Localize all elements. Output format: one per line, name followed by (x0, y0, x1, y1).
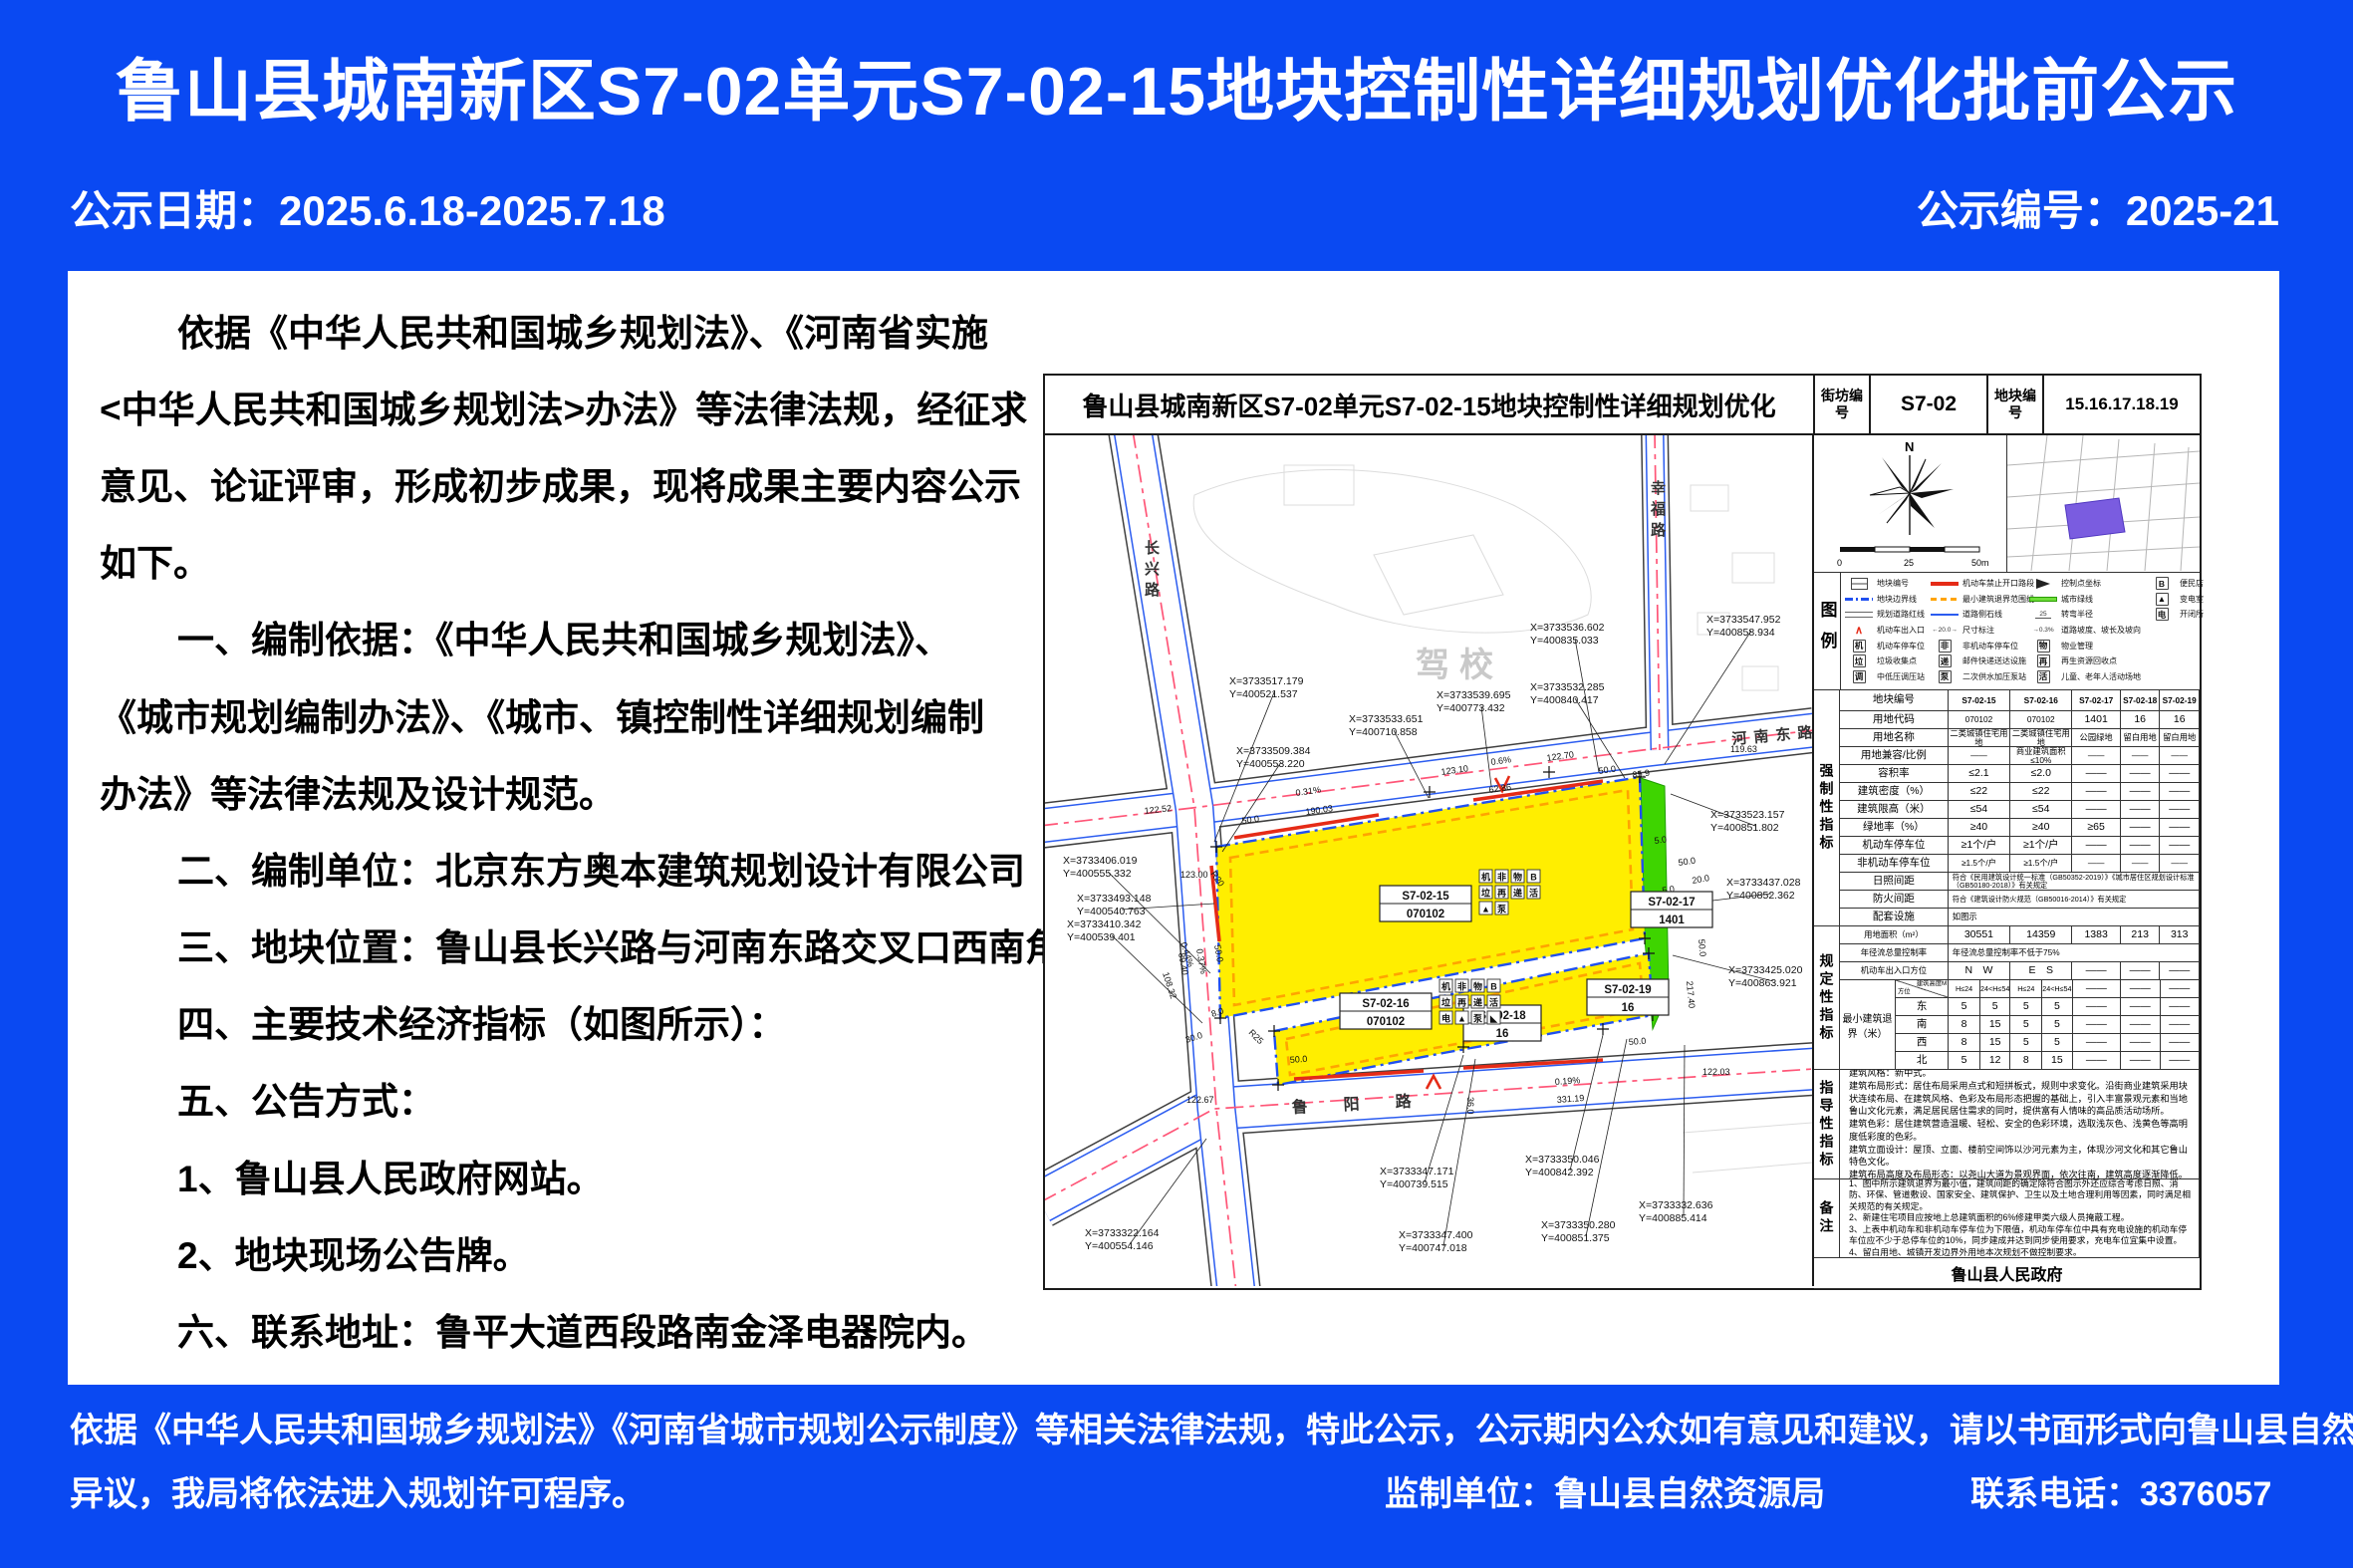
svg-text:长: 长 (1145, 539, 1161, 557)
svg-text:路: 路 (1651, 521, 1667, 539)
svg-text:S7-02-19: S7-02-19 (1604, 984, 1651, 996)
svg-text:Y=400840.417: Y=400840.417 (1530, 694, 1599, 706)
notice-line: 办法》等法律法规及设计规范。 (100, 752, 1061, 829)
svg-text:122.03: 122.03 (1702, 1067, 1730, 1077)
svg-text:122.67: 122.67 (1186, 1095, 1214, 1105)
svg-text:非: 非 (1497, 872, 1506, 883)
box-icon: 机 (1844, 640, 1874, 653)
legend-item: 活儿童、老年人活动场地 (2028, 669, 2147, 685)
svg-text:S7-02-16: S7-02-16 (1362, 998, 1409, 1010)
notice-line: 依据《中华人民共和国城乡规划法》、《河南省实施 (100, 291, 1061, 368)
svg-text:Y=400747.018: Y=400747.018 (1399, 1242, 1467, 1254)
svg-text:50m: 50m (1971, 558, 1989, 568)
plot-number-label: 地块编号 (1986, 376, 2042, 433)
svg-text:路: 路 (1145, 581, 1161, 599)
svg-text:物: 物 (1473, 981, 1482, 992)
legend-item: 非非机动车停车位 (1930, 638, 2028, 653)
svg-text:Y=400739.515: Y=400739.515 (1380, 1178, 1448, 1190)
svg-text:X=3733322.164: X=3733322.164 (1085, 1227, 1160, 1239)
svg-text:070102: 070102 (1407, 909, 1444, 920)
page-title: 鲁山县城南新区S7-02单元S7-02-15地块控制性详细规划优化批前公示 (0, 36, 2353, 134)
svg-text:Y=400885.414: Y=400885.414 (1639, 1212, 1707, 1224)
table-row: 建筑高度M方位H≤2424<H≤54H≤2424<H≤54—————— (1896, 980, 2200, 998)
legend-item: 25转弯半径 (2028, 607, 2147, 623)
bl-icon (1930, 614, 1960, 617)
table-row: 南81555—————— (1896, 1016, 2200, 1034)
svg-text:1401: 1401 (1659, 915, 1685, 926)
plotnum-icon (1844, 578, 1874, 590)
svg-text:再: 再 (1457, 998, 1466, 1008)
svg-text:X=3733493.148: X=3733493.148 (1077, 893, 1152, 905)
table-row: 容积率≤2.1≤2.0—————— (1840, 765, 2200, 783)
legend-item: 城市绿线 (2028, 592, 2147, 608)
compass-row: N (1814, 435, 2200, 573)
svg-text:X=3733437.028: X=3733437.028 (1726, 877, 1801, 889)
section-label: 最小建筑退界（米） (1840, 980, 1896, 1070)
table-row: 地块编号S7-02-15S7-02-16S7-02-17S7-02-18S7-0… (1840, 690, 2200, 711)
legend-section-label: 图例 (1814, 573, 1841, 689)
legend-item: 递邮件快递送达设施 (1930, 653, 2028, 669)
svg-text:Y=400710.858: Y=400710.858 (1349, 726, 1418, 738)
svg-text:Y=400773.432: Y=400773.432 (1437, 702, 1505, 714)
section-label: 强制性指标 (1814, 690, 1840, 926)
svg-text:20.0: 20.0 (1692, 873, 1710, 886)
svg-text:非: 非 (1457, 981, 1466, 992)
table-row: 用地兼容/比例——商业建筑面积≤10%—————— (1840, 747, 2200, 765)
svg-text:50.0: 50.0 (1241, 814, 1260, 826)
legend-item: 规划道路红线 (1844, 607, 1930, 623)
svg-text:福: 福 (1650, 500, 1666, 518)
svg-text:X=3733347.171: X=3733347.171 (1380, 1166, 1454, 1177)
publish-date: 公示日期：2025.6.18-2025.7.18 (70, 177, 665, 238)
svg-text:Y=400842.392: Y=400842.392 (1525, 1167, 1594, 1178)
section-label: 备注 (1814, 1179, 1840, 1258)
table-row: 东5555—————— (1896, 998, 2200, 1016)
notice-line: 意见、论证评审，形成初步成果，现将成果主要内容公示 (100, 444, 1061, 521)
legend-item: 物物业管理 (2028, 638, 2147, 653)
svg-text:Y=400863.921: Y=400863.921 (1728, 977, 1797, 989)
table-row: 用地名称二类城镇住宅用地二类城镇住宅用地公园绿地留白用地留白用地 (1840, 729, 2200, 747)
svg-text:X=3733350.280: X=3733350.280 (1541, 1219, 1616, 1231)
svg-text:递: 递 (1513, 888, 1522, 899)
legend-item: ▲变电室 (2147, 592, 2203, 608)
svg-text:◣: ◣ (1489, 1014, 1498, 1024)
north-label: N (1905, 439, 1914, 454)
notice-line: 如下。 (100, 522, 1061, 599)
notice-number: 公示编号：2025-21 (1917, 177, 2279, 238)
map-title: 鲁山县城南新区S7-02单元S7-02-15地块控制性详细规划优化 (1045, 376, 1813, 433)
svg-text:50.0: 50.0 (1289, 1054, 1307, 1065)
notice-line: 二、编制单位：北京东方奥本建筑规划设计有限公司 (100, 829, 1061, 906)
indicator-table: 地块编号S7-02-15S7-02-16S7-02-17S7-02-18S7-0… (1814, 689, 2200, 1286)
svg-text:S7-02-15: S7-02-15 (1402, 891, 1449, 903)
notice-poster: 鲁山县城南新区S7-02单元S7-02-15地块控制性详细规划优化批前公示 公示… (0, 0, 2353, 1568)
box-icon: 泵 (1930, 670, 1960, 683)
svg-text:331.19: 331.19 (1556, 1093, 1584, 1105)
svg-text:X=3733523.157: X=3733523.157 (1710, 809, 1785, 821)
notice-line: 2、地块现场公告牌。 (100, 1213, 1061, 1290)
svg-text:X=3733332.636: X=3733332.636 (1639, 1199, 1713, 1211)
box-icon: ▲ (2147, 593, 2177, 606)
legend-item: 再再生资源回收点 (2028, 653, 2147, 669)
svg-text:垃: 垃 (1481, 888, 1490, 899)
section-label: 规定性指标 (1814, 926, 1840, 1070)
table-row: 建筑限高（米）≤54≤54—————— (1840, 801, 2200, 819)
svg-text:X=3733406.019: X=3733406.019 (1063, 855, 1138, 867)
map-header: 鲁山县城南新区S7-02单元S7-02-15地块控制性详细规划优化 街坊编号 S… (1045, 376, 2200, 435)
notice-line: 四、主要技术经济指标（如图所示）： (100, 983, 1061, 1060)
bdd-icon (1844, 598, 1874, 601)
footer-line2-left: 异议，我局将依法进入规划许可程序。 (70, 1466, 646, 1515)
svg-text:123.00: 123.00 (1180, 870, 1208, 880)
table-row: 绿地率（%）≥40≥40≥65———— (1840, 819, 2200, 837)
notice-line: <中华人民共和国城乡规划法>办法》等法律法规，经征求 (100, 368, 1061, 444)
table-row: 非机动车停车位≥1.5个/户≥1.5个/户—————— (1840, 855, 2200, 873)
table-row: 机动车出入口方位N WE S—————— (1840, 962, 2200, 980)
svg-text:机: 机 (1441, 981, 1450, 992)
svg-text:X=3733536.602: X=3733536.602 (1530, 622, 1605, 634)
svg-text:Y=400858.934: Y=400858.934 (1706, 627, 1775, 639)
box-icon: 活 (2028, 670, 2058, 683)
box-icon: 垃 (1844, 654, 1874, 667)
table-row: 配套设施如图示 (1840, 909, 2200, 926)
table-row: 防火间距符合《建筑设计防火规范（GB50016-2014）》有关规定 (1840, 891, 2200, 909)
wind-rose-outline (1870, 459, 1926, 523)
svg-text:62.86: 62.86 (1488, 782, 1512, 795)
svg-text:85.9: 85.9 (1632, 768, 1651, 780)
svg-text:Y=400521.537: Y=400521.537 (1229, 688, 1298, 700)
svg-text:X=3733410.342: X=3733410.342 (1067, 918, 1142, 930)
table-row: 日照间距符合《民用建筑设计统一标准（GB50352-2019）》《城市居住区规划… (1840, 873, 2200, 891)
svg-text:S7-02-18: S7-02-18 (1478, 1010, 1526, 1022)
notice-line: 六、联系地址：鲁平大道西段路南金泽电器院内。 (100, 1290, 1061, 1367)
svg-text:50.0: 50.0 (1628, 1036, 1646, 1047)
box-icon: 递 (1930, 654, 1960, 667)
dim-icon: ←20.0→ (1930, 627, 1960, 634)
notice-line: 1、鲁山县人民政府网站。 (100, 1137, 1061, 1213)
svg-text:R25: R25 (1247, 1027, 1266, 1046)
legend-item: 垃垃圾收集点 (1844, 653, 1930, 669)
legend-item: ∧机动车出入口 (1844, 623, 1930, 639)
svg-text:16: 16 (1622, 1002, 1635, 1014)
table-row: 北512815—————— (1896, 1052, 2200, 1070)
svg-text:217.40: 217.40 (1685, 980, 1697, 1008)
legend-item: 调中低压调压站 (1844, 669, 1930, 685)
box-icon: B (2147, 577, 2177, 590)
svg-text:X=3733347.400: X=3733347.400 (1399, 1229, 1473, 1241)
section-label: 指导性指标 (1814, 1070, 1840, 1179)
box-icon: 电 (2147, 608, 2177, 621)
legend-item: 最小建筑退界范围线 (1930, 592, 2028, 608)
legend-item: ←20.0→尺寸标注 (1930, 623, 2028, 639)
box-icon: 物 (2028, 640, 2058, 653)
notice-line: 一、编制依据：《中华人民共和国城乡规划法》、 (100, 599, 1061, 675)
legend-item: B便民店 (2147, 576, 2203, 592)
legend-item: 控制点坐标 (2028, 576, 2147, 592)
table-row: 用地面积（m²）30551143591383213313 (1840, 926, 2200, 944)
legend-item: 道路侧石线 (1930, 607, 2028, 623)
svg-text:Y=400554.146: Y=400554.146 (1085, 1240, 1154, 1252)
table-row: 年径流总量控制率年径流总量控制率不低于75% (1840, 944, 2200, 962)
subheader: 公示日期：2025.6.18-2025.7.18 公示编号：2025-21 (70, 177, 2279, 238)
svg-text:幸: 幸 (1651, 480, 1666, 497)
svg-text:Y=400553.220: Y=400553.220 (1236, 758, 1305, 770)
legend-item: →0.3%道路坡度、坡长及坡向 (2028, 623, 2147, 639)
table-row: 建筑密度（%）≤22≤22—————— (1840, 783, 2200, 801)
svg-text:0.19%: 0.19% (1554, 1075, 1580, 1087)
plot-label: S7-02-15070102 (1380, 886, 1471, 921)
svg-text:泵: 泵 (1473, 1014, 1483, 1024)
svg-text:X=3733509.384: X=3733509.384 (1236, 745, 1311, 757)
svg-text:物: 物 (1513, 872, 1522, 883)
block-number-value: S7-02 (1869, 376, 1986, 433)
slope-icon: →0.3% (2028, 627, 2058, 634)
svg-text:泵: 泵 (1497, 905, 1507, 915)
svg-text:X=3733425.020: X=3733425.020 (1728, 964, 1803, 976)
plan-drawing: X=3733517.179Y=400521.537X=3733509.384Y=… (1045, 435, 1812, 1286)
rad-icon: 25 (2028, 611, 2058, 619)
svg-text:Y=400851.375: Y=400851.375 (1541, 1232, 1610, 1244)
notice-line: 《城市规划编制办法》、《城市、镇控制性详细规划编制 (100, 675, 1061, 752)
svg-text:Y=400540.763: Y=400540.763 (1077, 906, 1146, 917)
svg-text:X=3733547.952: X=3733547.952 (1706, 614, 1781, 626)
svg-text:机: 机 (1481, 872, 1490, 883)
svg-text:S7-02-17: S7-02-17 (1648, 897, 1695, 909)
box-icon: 调 (1844, 670, 1874, 683)
table-row: 1、图中所示建筑退界为最小值，建筑间距的确定除符合图示外还应综合考虑日照、消防、… (1840, 1179, 2200, 1258)
svg-text:Y=400852.362: Y=400852.362 (1726, 890, 1795, 902)
content-panel: 依据《中华人民共和国城乡规划法》、《河南省实施<中华人民共和国城乡规划法>办法》… (68, 271, 2279, 1385)
plot-label: S7-02-1916 (1587, 979, 1669, 1015)
od-icon (1930, 598, 1960, 601)
svg-text:Y=400555.332: Y=400555.332 (1063, 868, 1132, 880)
legend-item: 泵二次供水加压泵站 (1930, 669, 2028, 685)
box-icon: 非 (1930, 640, 1960, 653)
svg-text:25: 25 (1904, 558, 1914, 568)
legend-item: 机动车禁止开口路段 (1930, 576, 2028, 592)
svg-text:▲: ▲ (1481, 905, 1490, 915)
compass: N (1814, 435, 2007, 572)
legend-item: 地块边界线 (1844, 592, 1930, 608)
caret-icon: ∧ (1844, 627, 1874, 635)
table-row: 西81555—————— (1896, 1034, 2200, 1052)
plot-label: S7-02-16070102 (1340, 993, 1432, 1029)
svg-text:X=3733539.695: X=3733539.695 (1437, 689, 1511, 701)
dbl-icon (1844, 612, 1874, 618)
legend-item: 电开闭所 (2147, 607, 2203, 623)
svg-text:50.0: 50.0 (1697, 938, 1707, 956)
svg-text:B: B (1530, 873, 1537, 883)
notice-body: 依据《中华人民共和国城乡规划法》、《河南省实施<中华人民共和国城乡规划法>办法》… (100, 291, 1061, 1368)
table-row: 机动车停车位≥1个/户≥1个/户—————— (1840, 837, 2200, 855)
table-row: 建筑风格：新中式。建筑布局形式：居住布局采用点式和短拼板式，规则中求变化。沿街商… (1840, 1070, 2200, 1179)
svg-text:活: 活 (1489, 997, 1498, 1008)
svg-text:Y=400539.401: Y=400539.401 (1067, 931, 1136, 943)
legend: 图例 地块编号地块边界线规划道路红线∧机动车出入口机机动车停车位垃垃圾收集点调中… (1814, 573, 2200, 690)
notice-line: 五、公告方式： (100, 1060, 1061, 1137)
svg-text:X=3733350.046: X=3733350.046 (1525, 1154, 1600, 1166)
svg-text:50.0: 50.0 (1678, 856, 1697, 868)
svg-text:X=3733517.179: X=3733517.179 (1229, 675, 1304, 687)
government-label: 鲁山县人民政府 (1814, 1258, 2200, 1289)
svg-text:垃: 垃 (1441, 997, 1450, 1008)
plot-label: S7-02-171401 (1631, 892, 1712, 927)
cp-icon (2028, 579, 2058, 589)
notice-line: 三、地块位置：鲁山县长兴路与河南东路交叉口西南角 (100, 907, 1061, 983)
svg-text:驾校: 驾校 (1416, 647, 1503, 684)
legend-item: 机机动车停车位 (1844, 638, 1930, 653)
svg-text:电: 电 (1441, 1013, 1450, 1024)
svg-text:X=3733532.285: X=3733532.285 (1530, 681, 1605, 693)
svg-text:兴: 兴 (1145, 561, 1160, 578)
planning-map-block: 鲁山县城南新区S7-02单元S7-02-15地块控制性详细规划优化 街坊编号 S… (1043, 374, 2202, 1290)
svg-text:▲: ▲ (1457, 1014, 1466, 1024)
svg-text:活: 活 (1529, 888, 1538, 899)
svg-text:递: 递 (1473, 997, 1482, 1008)
box-icon: 再 (2028, 654, 2058, 667)
svg-text:B: B (1490, 982, 1497, 992)
current-plot-highlight (2065, 498, 2125, 539)
gr-icon (2028, 597, 2058, 602)
svg-text:Y=400835.033: Y=400835.033 (1530, 635, 1599, 647)
scale-bar: 0 25 50m (1837, 547, 1989, 568)
svg-text:0: 0 (1837, 558, 1842, 568)
plot-number-value: 15.16.17.18.19 (2042, 376, 2200, 433)
svg-text:Y=400851.802: Y=400851.802 (1710, 822, 1779, 834)
supervisor-unit: 监制单位：鲁山县自然资源局 (1385, 1466, 1825, 1515)
location-keymap (2007, 435, 2201, 572)
svg-text:070102: 070102 (1367, 1016, 1405, 1028)
legend-item: 地块编号 (1844, 576, 1930, 592)
svg-text:36.0: 36.0 (1465, 1097, 1475, 1115)
svg-text:再: 再 (1497, 889, 1506, 899)
svg-text:X=3733533.651: X=3733533.651 (1349, 713, 1424, 725)
block-number-label: 街坊编号 (1813, 376, 1869, 433)
indicator-panel: N (1812, 435, 2200, 1286)
footer-line1: 依据《中华人民共和国城乡规划法》《河南省城市规划公示制度》等相关法律法规，特此公… (70, 1403, 2287, 1451)
red-icon (1930, 582, 1960, 586)
svg-text:16: 16 (1496, 1028, 1509, 1040)
table-row: 用地代码07010207010214011616 (1840, 711, 2200, 729)
contact-phone: 联系电话：3376057 (1970, 1466, 2271, 1515)
svg-text:5.0: 5.0 (1654, 834, 1668, 846)
